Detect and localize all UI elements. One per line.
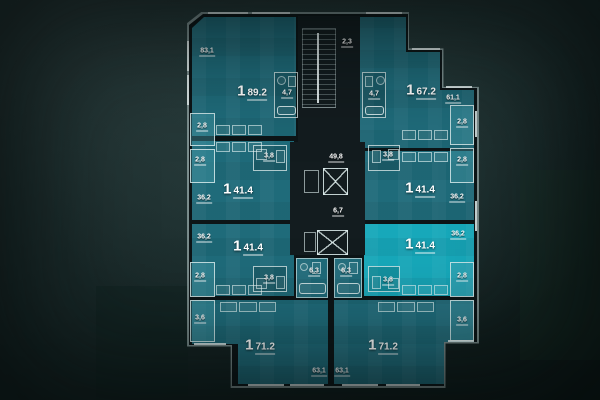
rooms-count: 1 [223, 182, 231, 197]
background-building-left [96, 286, 188, 400]
stairs-icon [302, 28, 336, 108]
window-mark [208, 12, 248, 14]
apartment-area-label: 1 41.4 [223, 182, 253, 199]
rooms-count: 1 [245, 338, 253, 353]
background-building-right [520, 170, 600, 360]
living-area-label: 36,2 [196, 195, 212, 204]
window-mark [187, 41, 189, 71]
rooms-count: 1 [405, 181, 413, 196]
window-mark [475, 201, 477, 231]
bathroom-area-label: 4,7 [281, 90, 293, 99]
corridor-area-label: 49,8 [328, 154, 344, 163]
rooms-count: 1 [237, 84, 245, 99]
elevator-machine-room [304, 170, 319, 193]
stairwell-area-label: 2,3 [341, 39, 353, 48]
total-area: 41.4 [243, 244, 262, 256]
elevator-icon [317, 230, 348, 255]
apartment-area-label: 1 89.2 [237, 84, 267, 101]
sink-icon [376, 76, 385, 85]
elevator-icon [323, 168, 348, 195]
apartment-area-label: 1 41.4 [405, 237, 435, 254]
apartment-area-label: 1 41.4 [233, 239, 263, 256]
window-mark [194, 343, 226, 345]
bathroom-area-label: 3,8 [382, 152, 394, 161]
sink-icon [277, 76, 286, 85]
scene: 1 89.2 1 67.2 1 41.4 1 41.4 1 41.4 1 41.… [0, 0, 600, 400]
window-mark [448, 340, 474, 342]
rooms-count: 1 [368, 338, 376, 353]
bathroom-area-label: 3,8 [382, 277, 394, 286]
kitchen-counter [216, 142, 262, 152]
balcony-area-label: 3,6 [194, 315, 206, 324]
window-mark [342, 384, 378, 386]
total-area: 71.2 [255, 343, 274, 355]
bathtub-icon [277, 106, 296, 115]
kitchen-counter [402, 152, 448, 162]
balcony-area-label: 2,8 [194, 273, 206, 282]
sink-icon [300, 263, 308, 271]
apartment-area-label: 1 41.4 [405, 181, 435, 198]
balcony-area-label: 2,8 [196, 123, 208, 132]
living-area-label: 36,2 [450, 231, 466, 240]
kitchen-counter [216, 285, 262, 295]
total-area: 41.4 [415, 186, 434, 198]
apartment-bottom-left-bathroom[interactable] [296, 258, 328, 298]
living-area-label: 36,2 [449, 194, 465, 203]
floor-plan: 1 89.2 1 67.2 1 41.4 1 41.4 1 41.4 1 41.… [186, 11, 480, 389]
kitchen-counter [220, 302, 276, 312]
bathroom-area-label: 6,3 [340, 268, 352, 277]
living-area-label: 61,1 [445, 95, 461, 104]
kitchen-counter [216, 125, 262, 135]
window-mark [386, 384, 420, 386]
toilet-icon [372, 276, 381, 289]
living-area-label: 36,2 [196, 234, 212, 243]
apartment-bottom-right-bathroom[interactable] [334, 258, 362, 298]
window-mark [252, 12, 290, 14]
window-mark [475, 111, 477, 137]
toilet-icon [365, 76, 373, 87]
total-area: 67.2 [416, 88, 435, 100]
bathtub-icon [365, 106, 384, 115]
bathroom-area-label: 4,7 [368, 91, 380, 100]
window-mark [366, 12, 402, 14]
elevator-machine-room [304, 232, 316, 252]
kitchen-counter [402, 130, 448, 140]
rooms-count: 1 [233, 239, 241, 254]
living-area-label: 63,1 [311, 368, 327, 377]
bathtub-icon [337, 283, 360, 294]
living-area-label: 83,1 [199, 48, 215, 57]
balcony-area-label: 2,8 [194, 157, 206, 166]
elevator-lobby-area-label: 6,7 [332, 208, 344, 217]
living-area-label: 63,1 [334, 368, 350, 377]
toilet-icon [372, 150, 381, 163]
balcony-area-label: 3,6 [456, 317, 468, 326]
balcony-area-label: 2,8 [456, 273, 468, 282]
apartment-area-label: 1 71.2 [245, 338, 275, 355]
balcony-area-label: 2,8 [456, 157, 468, 166]
window-mark [412, 48, 440, 50]
toilet-icon [276, 276, 285, 289]
total-area: 71.2 [378, 343, 397, 355]
window-mark [446, 86, 472, 88]
rooms-count: 1 [406, 83, 414, 98]
rooms-count: 1 [405, 237, 413, 252]
stair-stringer [317, 33, 319, 103]
balcony-area-label: 2,8 [456, 119, 468, 128]
kitchen-counter [378, 302, 434, 312]
total-area: 41.4 [233, 187, 252, 199]
total-area: 89.2 [247, 89, 266, 101]
bathroom-area-label: 6,3 [308, 268, 320, 277]
bathroom-area-label: 3,8 [263, 153, 275, 162]
apartment-area-label: 1 71.2 [368, 338, 398, 355]
toilet-icon [288, 76, 296, 87]
kitchen-counter [402, 285, 448, 295]
balcony [450, 148, 474, 183]
window-mark [187, 75, 189, 105]
window-mark [248, 384, 284, 386]
window-mark [290, 384, 324, 386]
bathtub-icon [299, 283, 326, 294]
balcony [190, 149, 215, 183]
total-area: 41.4 [415, 242, 434, 254]
toilet-icon [276, 150, 285, 163]
apartment-area-label: 1 67.2 [406, 83, 436, 100]
bathroom-area-label: 3,8 [263, 275, 275, 284]
